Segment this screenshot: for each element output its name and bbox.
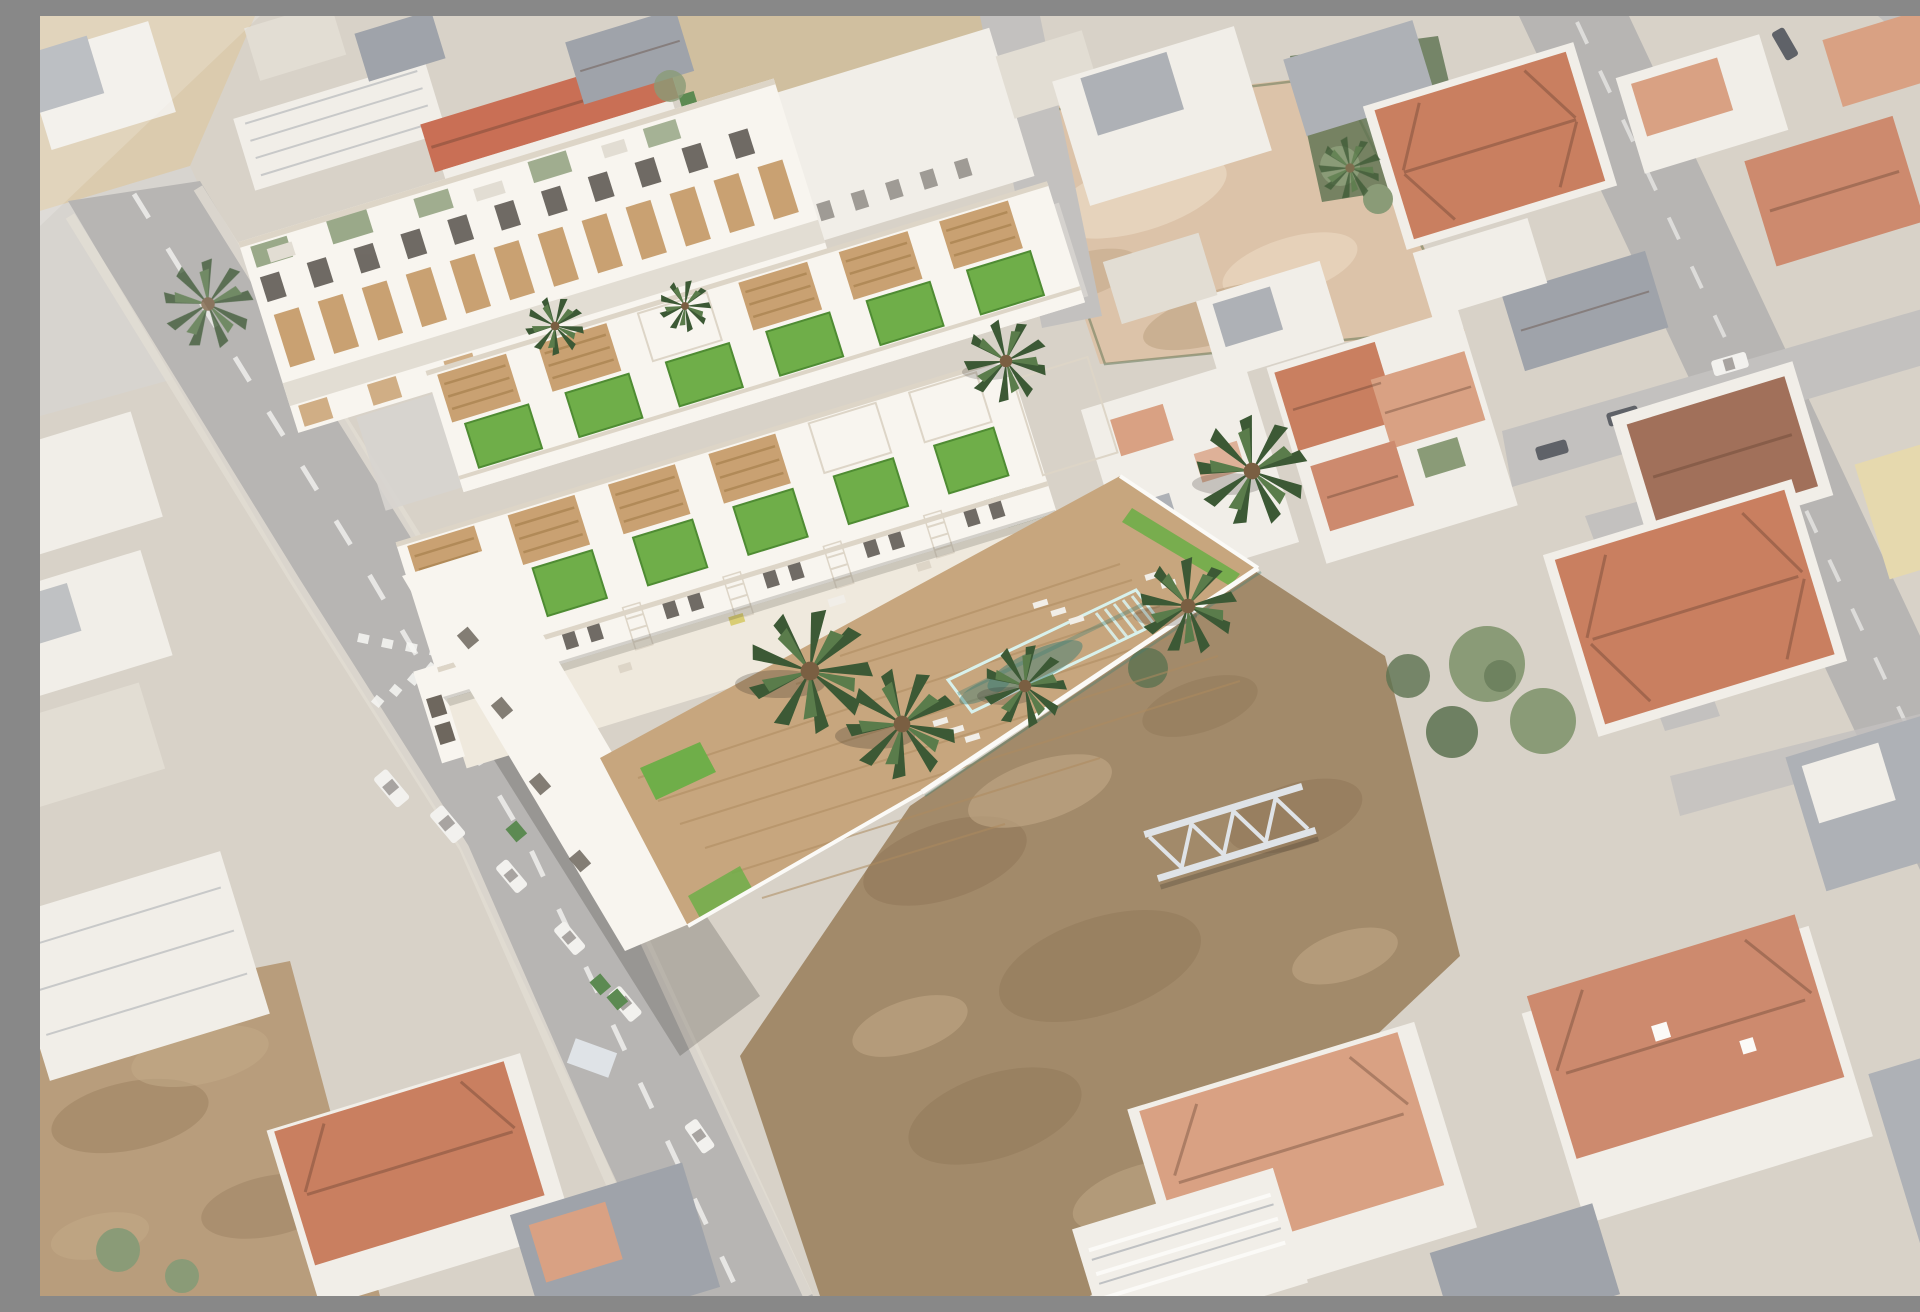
bush [96, 1228, 140, 1272]
tree [1484, 660, 1516, 692]
aerial-scene [40, 16, 1920, 1296]
tree [1363, 184, 1393, 214]
bush [165, 1259, 199, 1293]
tree [654, 70, 686, 102]
tree [1426, 706, 1478, 758]
aerial-photo [40, 16, 1920, 1296]
tree [1510, 688, 1576, 754]
tree [1449, 626, 1525, 702]
tree [1386, 654, 1430, 698]
